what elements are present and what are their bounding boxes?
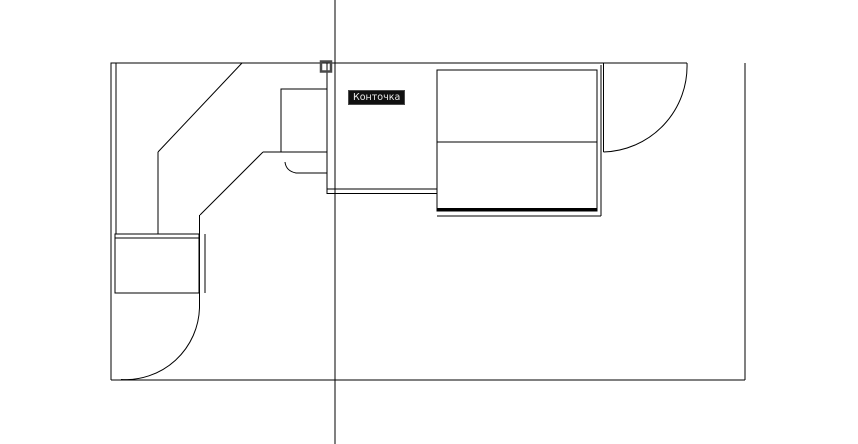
- base-cabinet[interactable]: [115, 234, 199, 293]
- appliance-block[interactable]: [281, 89, 327, 152]
- diagonal-wall-1[interactable]: [158, 63, 242, 152]
- cad-drawing-canvas[interactable]: Конточка: [0, 0, 858, 444]
- diagonal-wall-2[interactable]: [200, 152, 263, 215]
- snap-tooltip: Конточка: [348, 90, 405, 105]
- small-door-swing[interactable]: [285, 162, 327, 173]
- door-swing-arc-top-right[interactable]: [604, 63, 688, 152]
- large-cabinet-outer-edge[interactable]: [437, 65, 601, 216]
- snap-tooltip-label: Конточка: [353, 92, 400, 103]
- floor-plan-drawing: [0, 0, 858, 444]
- door-swing-arc-bottom-left[interactable]: [121, 308, 200, 380]
- large-cabinet[interactable]: [437, 70, 597, 211]
